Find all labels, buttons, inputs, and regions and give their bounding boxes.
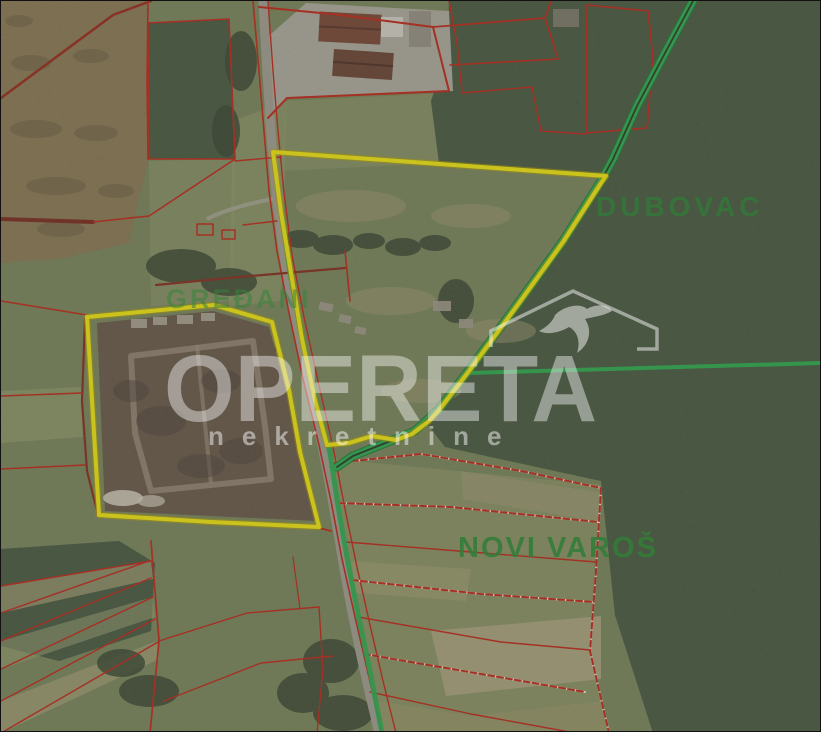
satellite-map <box>1 1 821 732</box>
map-canvas: GREĐANI DUBOVAC NOVI VAROŠ OPERETA nekre… <box>0 0 821 732</box>
